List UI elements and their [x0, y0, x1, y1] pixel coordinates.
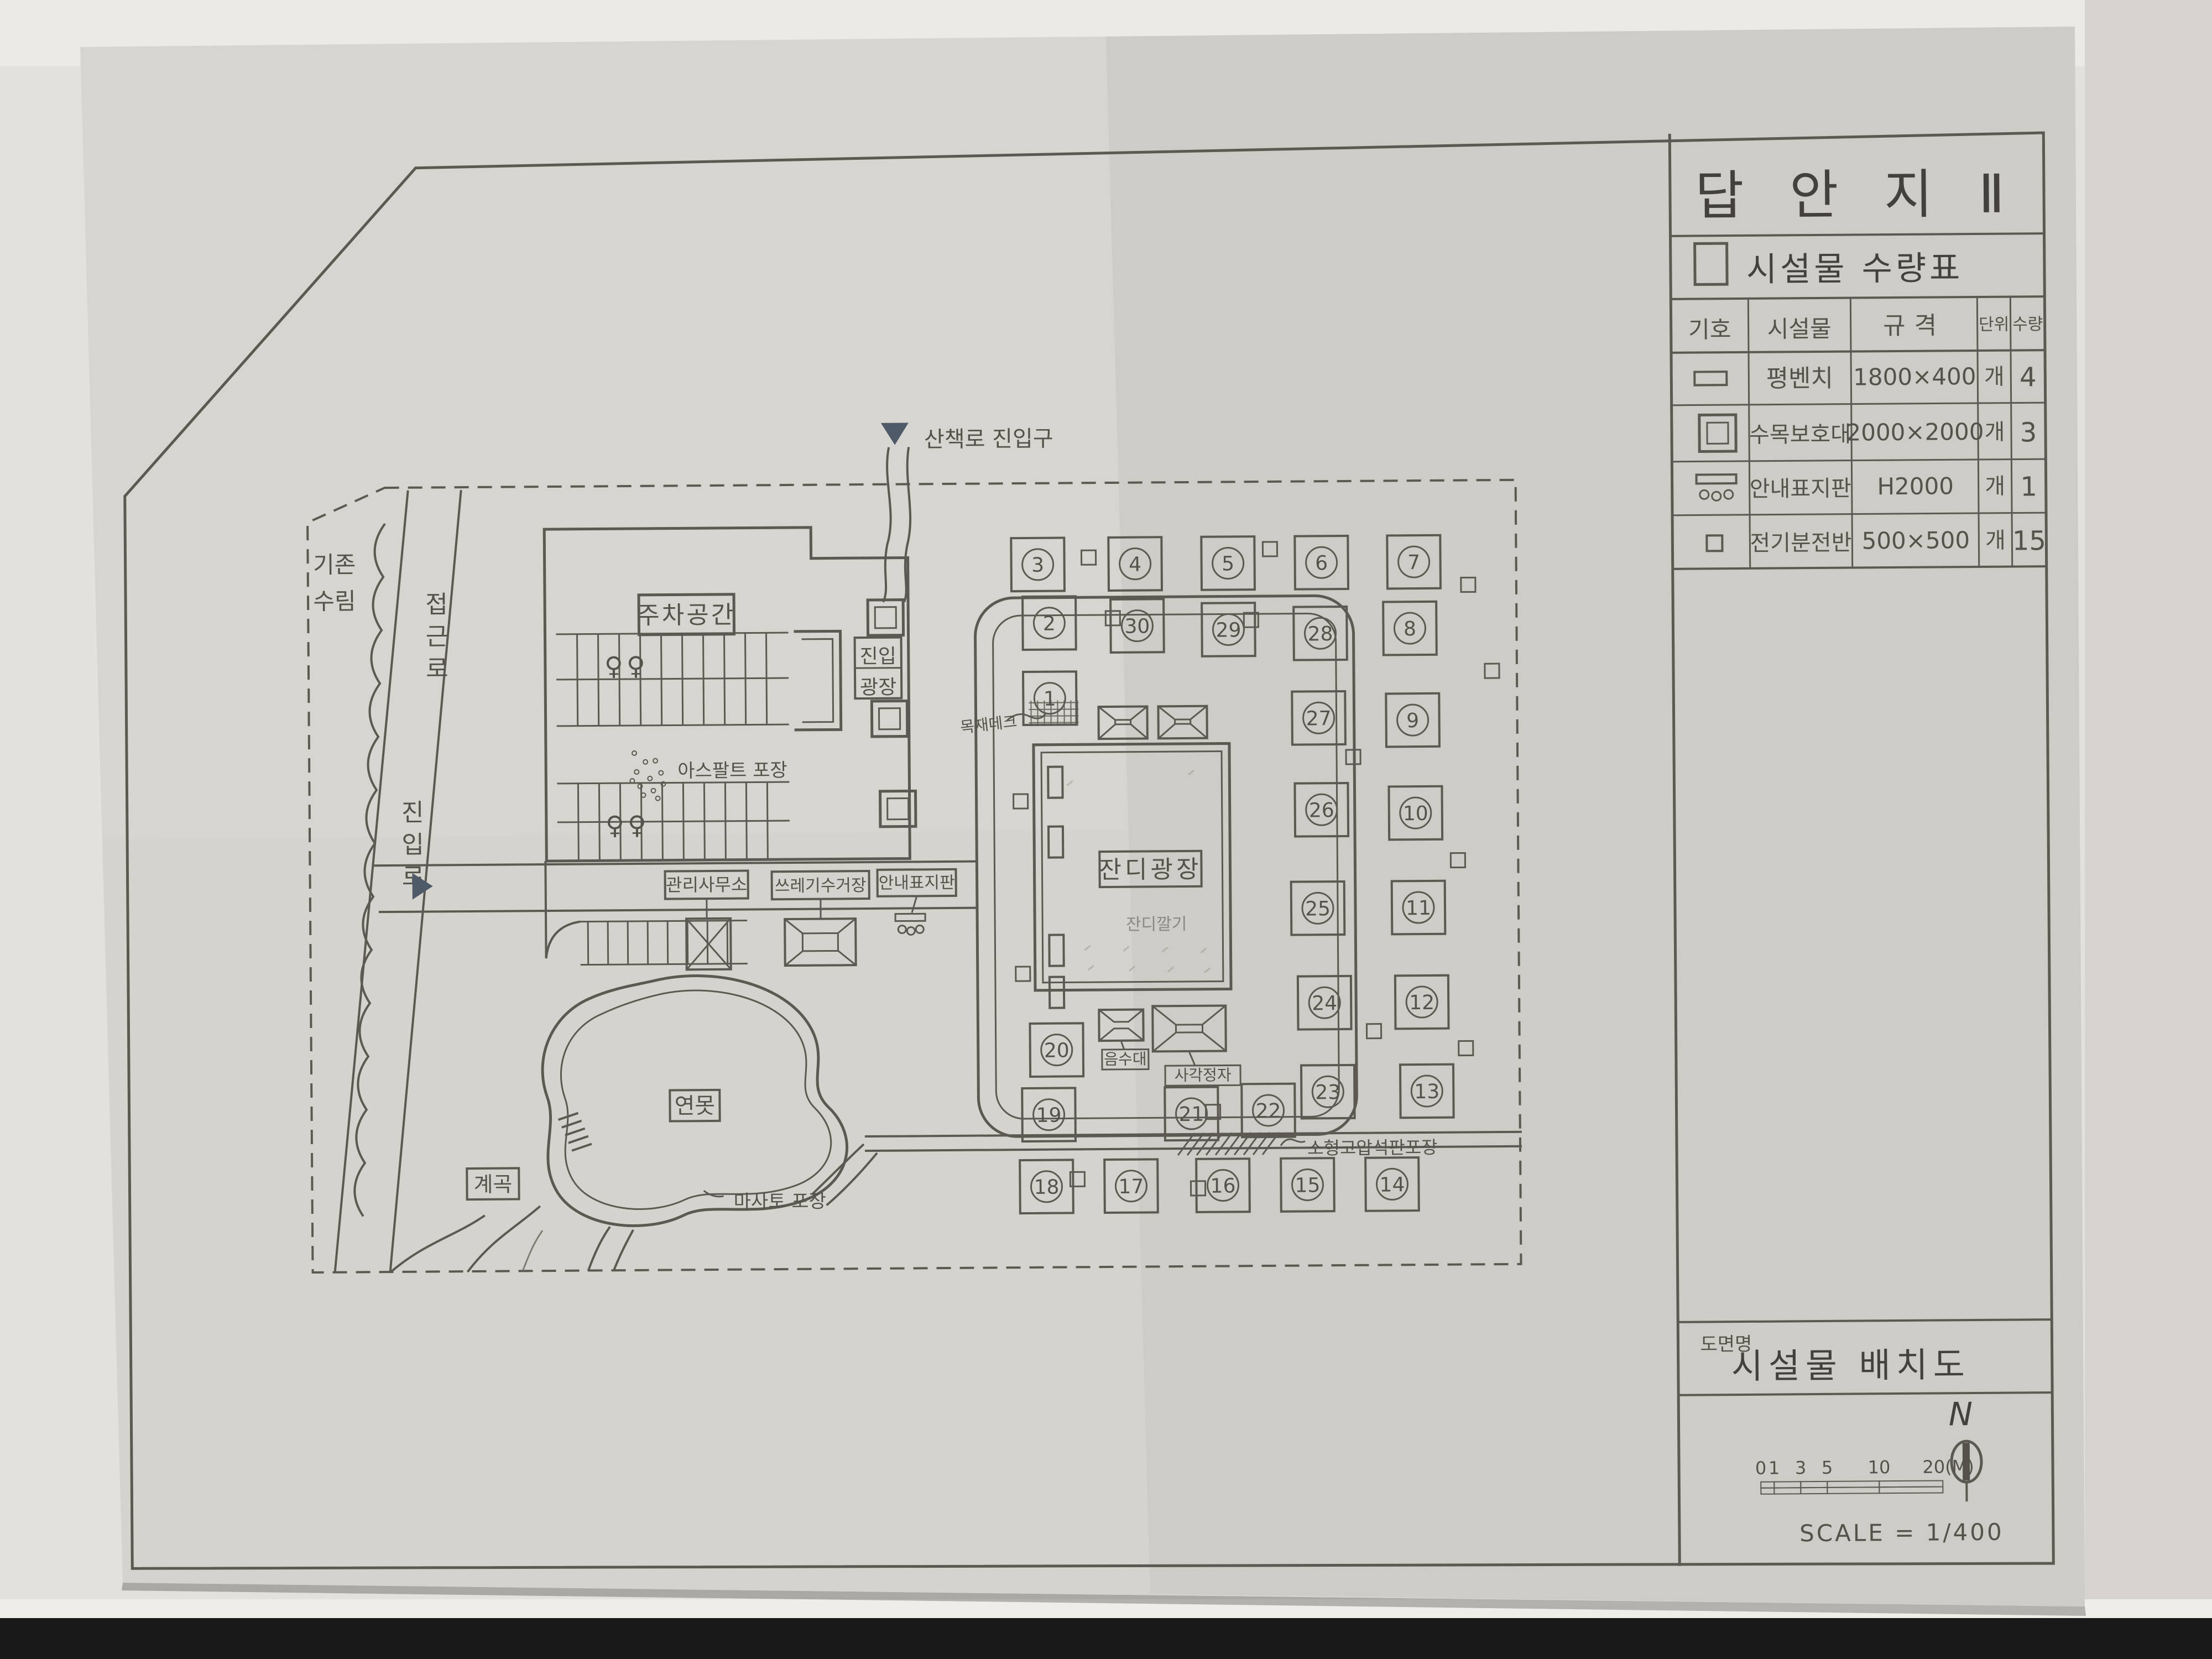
tree-number: 9: [1406, 709, 1419, 732]
tree-number: 3: [1031, 554, 1044, 577]
approach-road-label: 접근로: [420, 591, 448, 687]
entry-plaza-label-2: 광장: [860, 676, 897, 699]
tree-number: 15: [1295, 1174, 1320, 1197]
row-unit: 개: [1985, 528, 2006, 554]
tree-number: 26: [1309, 799, 1334, 822]
tree-number: 30: [1124, 615, 1150, 638]
row-name: 안내표지판: [1750, 476, 1851, 502]
tree-number: 6: [1315, 552, 1328, 575]
asphalt-note: 아스팔트 포장: [677, 759, 787, 782]
tree-number: 27: [1306, 707, 1332, 730]
row-unit: 개: [1984, 364, 2005, 390]
lawn-note: 잔디깔기: [1126, 915, 1187, 935]
tree-number: 1: [1044, 688, 1056, 711]
tree-number: 7: [1407, 551, 1420, 574]
pavilion-label: 사각정자: [1174, 1066, 1231, 1084]
accessible-stall-marker: ♀: [604, 651, 623, 681]
lawn-plaza-label: 잔디광장: [1099, 855, 1202, 884]
north-label: N: [1948, 1395, 1973, 1433]
tree-number: 24: [1312, 992, 1337, 1015]
pond-label: 연못: [675, 1093, 716, 1119]
table-dark-band: [0, 1618, 2212, 1659]
row-qty: 3: [2020, 417, 2037, 448]
accessible-stall-marker: ♀: [606, 810, 624, 840]
scale-tick: 10: [1868, 1457, 1891, 1478]
accessible-stall-marker: ♀: [628, 810, 646, 840]
answer-sheet-title: 답 안 지 Ⅱ: [1695, 163, 2020, 227]
wall-right: [2085, 0, 2212, 1659]
block-paving-note: 소형고압석판포장: [1307, 1137, 1438, 1159]
row-size: 2000×2000: [1846, 418, 1984, 446]
row-name: 평벤치: [1766, 364, 1833, 393]
valley-label: 계곡: [473, 1172, 512, 1197]
tree-number: 12: [1409, 992, 1434, 1014]
row-size: 500×500: [1861, 526, 1970, 554]
row-qty: 1: [2020, 471, 2037, 502]
row-size: 1800×400: [1853, 363, 1976, 391]
tree-number: 8: [1404, 618, 1416, 640]
tree-number: 20: [1044, 1039, 1070, 1062]
tree-number: 22: [1256, 1100, 1281, 1123]
tree-number: 28: [1307, 623, 1333, 645]
scale-tick: 0: [1755, 1458, 1767, 1479]
row-qty: 4: [2020, 362, 2037, 393]
tree-number: 2: [1043, 613, 1056, 635]
row-name: 수목보호대: [1749, 422, 1851, 448]
drinking-label: 음수대: [1104, 1050, 1147, 1068]
tree-number: 10: [1403, 802, 1428, 825]
drawing-name: 시설물 배치도: [1731, 1344, 1970, 1386]
scale-tick: 5: [1822, 1457, 1833, 1478]
tree-number: 17: [1118, 1176, 1144, 1198]
row-unit: 개: [1984, 420, 2005, 445]
scale-tick: 20(M): [1922, 1456, 1974, 1478]
tree-number: 4: [1129, 554, 1141, 576]
col-qty: 수량: [2012, 315, 2043, 334]
accessible-stall-marker: ♀: [627, 651, 645, 681]
col-size: 규격: [1883, 311, 1945, 340]
row-size: H2000: [1877, 472, 1954, 500]
col-symbol: 기호: [1688, 316, 1731, 343]
scale-tick: 1: [1768, 1458, 1780, 1479]
tree-number: 14: [1379, 1173, 1405, 1196]
entry-plaza-label-1: 진입: [860, 645, 897, 668]
tree-number: 5: [1222, 552, 1234, 575]
office-label: 관리사무소: [666, 874, 747, 896]
parking-label: 주차공간: [637, 601, 735, 630]
tree-number: 19: [1036, 1104, 1062, 1127]
row-name: 전기분전반: [1750, 530, 1851, 556]
photo-of-hand-drawn-site-plan: 답 안 지 Ⅱ 시설물 수량표 기호 시설물 규격 단위 수량 평벤치 1800…: [0, 0, 2212, 1659]
walk-entrance-label: 산책로 진입구: [924, 426, 1053, 453]
existing-forest-label-2: 수림: [313, 587, 356, 615]
legend-title: 시설물 수량표: [1746, 249, 1964, 289]
col-facility: 시설물: [1767, 315, 1832, 343]
row-qty: 15: [2012, 525, 2046, 556]
existing-forest-label-1: 기존: [313, 551, 356, 578]
sign-label: 안내표지판: [879, 873, 955, 893]
tree-number: 25: [1305, 898, 1331, 920]
scale-tick: 3: [1795, 1457, 1807, 1478]
tree-number: 16: [1210, 1175, 1235, 1197]
row-unit: 개: [1985, 474, 2005, 499]
garbage-label: 쓰레기수거장: [775, 876, 867, 896]
col-unit: 단위: [1979, 315, 2009, 335]
tree-number: 23: [1315, 1081, 1340, 1104]
tree-number: 18: [1034, 1176, 1059, 1199]
tree-number: 29: [1215, 619, 1241, 641]
tree-number: 11: [1406, 897, 1431, 920]
tree-number: 21: [1179, 1103, 1204, 1126]
tree-number: 13: [1414, 1081, 1439, 1103]
scale-text: SCALE = 1/400: [1799, 1519, 2004, 1547]
masato-note: 마사토 포장: [734, 1191, 826, 1213]
